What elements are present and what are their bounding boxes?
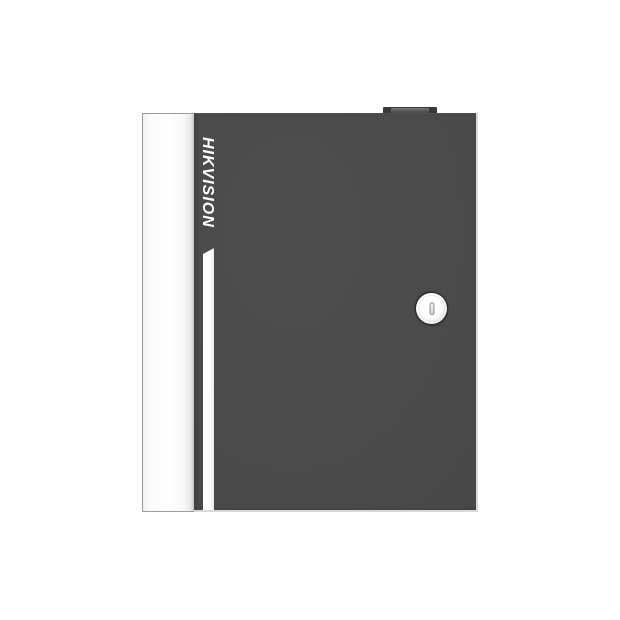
accent-stripe bbox=[203, 248, 214, 510]
cabinet-side-panel bbox=[142, 113, 194, 512]
brand-logo: HIKVISION bbox=[198, 137, 216, 235]
cabinet-door: HIKVISION bbox=[194, 113, 478, 512]
product-photo: HIKVISION bbox=[0, 0, 620, 620]
controller-cabinet: HIKVISION bbox=[142, 113, 478, 512]
cam-lock bbox=[416, 293, 447, 324]
keyhole-icon bbox=[429, 302, 434, 315]
